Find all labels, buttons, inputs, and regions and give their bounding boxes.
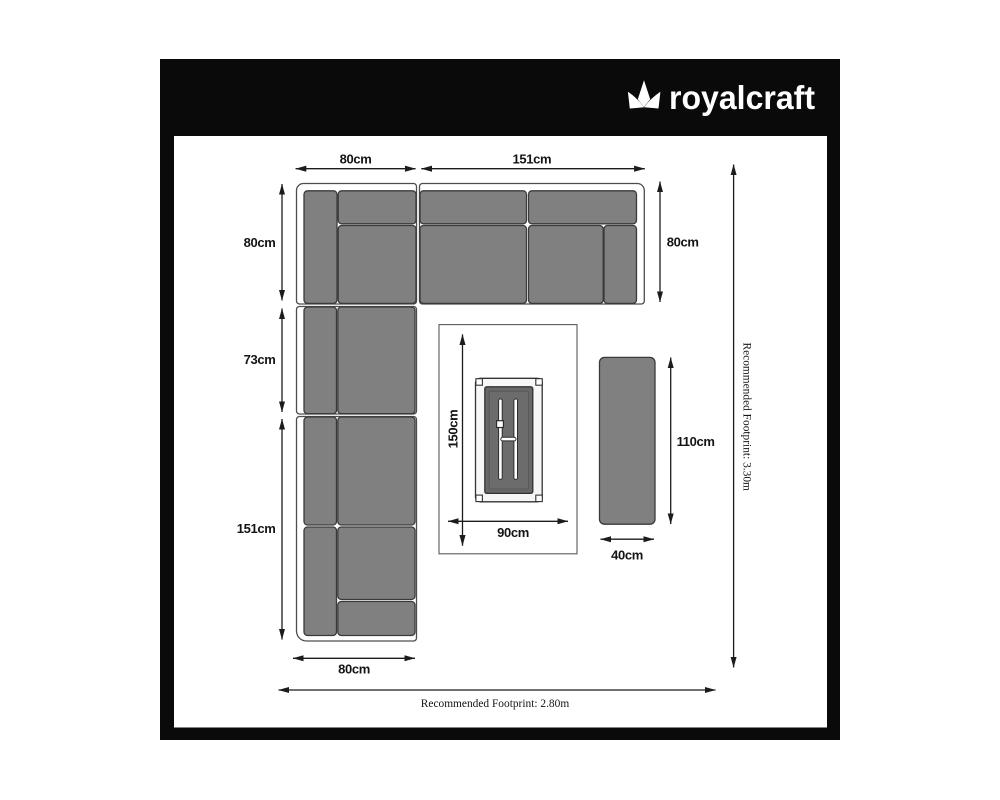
svg-text:80cm: 80cm xyxy=(244,235,276,250)
svg-text:90cm: 90cm xyxy=(497,525,529,540)
svg-text:151cm: 151cm xyxy=(513,151,552,166)
svg-text:110cm: 110cm xyxy=(677,434,715,449)
svg-text:73cm: 73cm xyxy=(244,352,276,367)
svg-text:40cm: 40cm xyxy=(611,548,643,563)
svg-text:Recommended Footprint: 3.30m: Recommended Footprint: 3.30m xyxy=(741,343,753,492)
svg-text:80cm: 80cm xyxy=(667,235,699,250)
svg-text:Recommended Footprint: 2.80m: Recommended Footprint: 2.80m xyxy=(421,698,570,710)
svg-text:royalcraft: royalcraft xyxy=(669,79,815,116)
svg-text:150cm: 150cm xyxy=(445,410,460,449)
svg-text:151cm: 151cm xyxy=(237,521,276,536)
svg-text:80cm: 80cm xyxy=(340,151,372,166)
svg-text:80cm: 80cm xyxy=(338,661,370,676)
